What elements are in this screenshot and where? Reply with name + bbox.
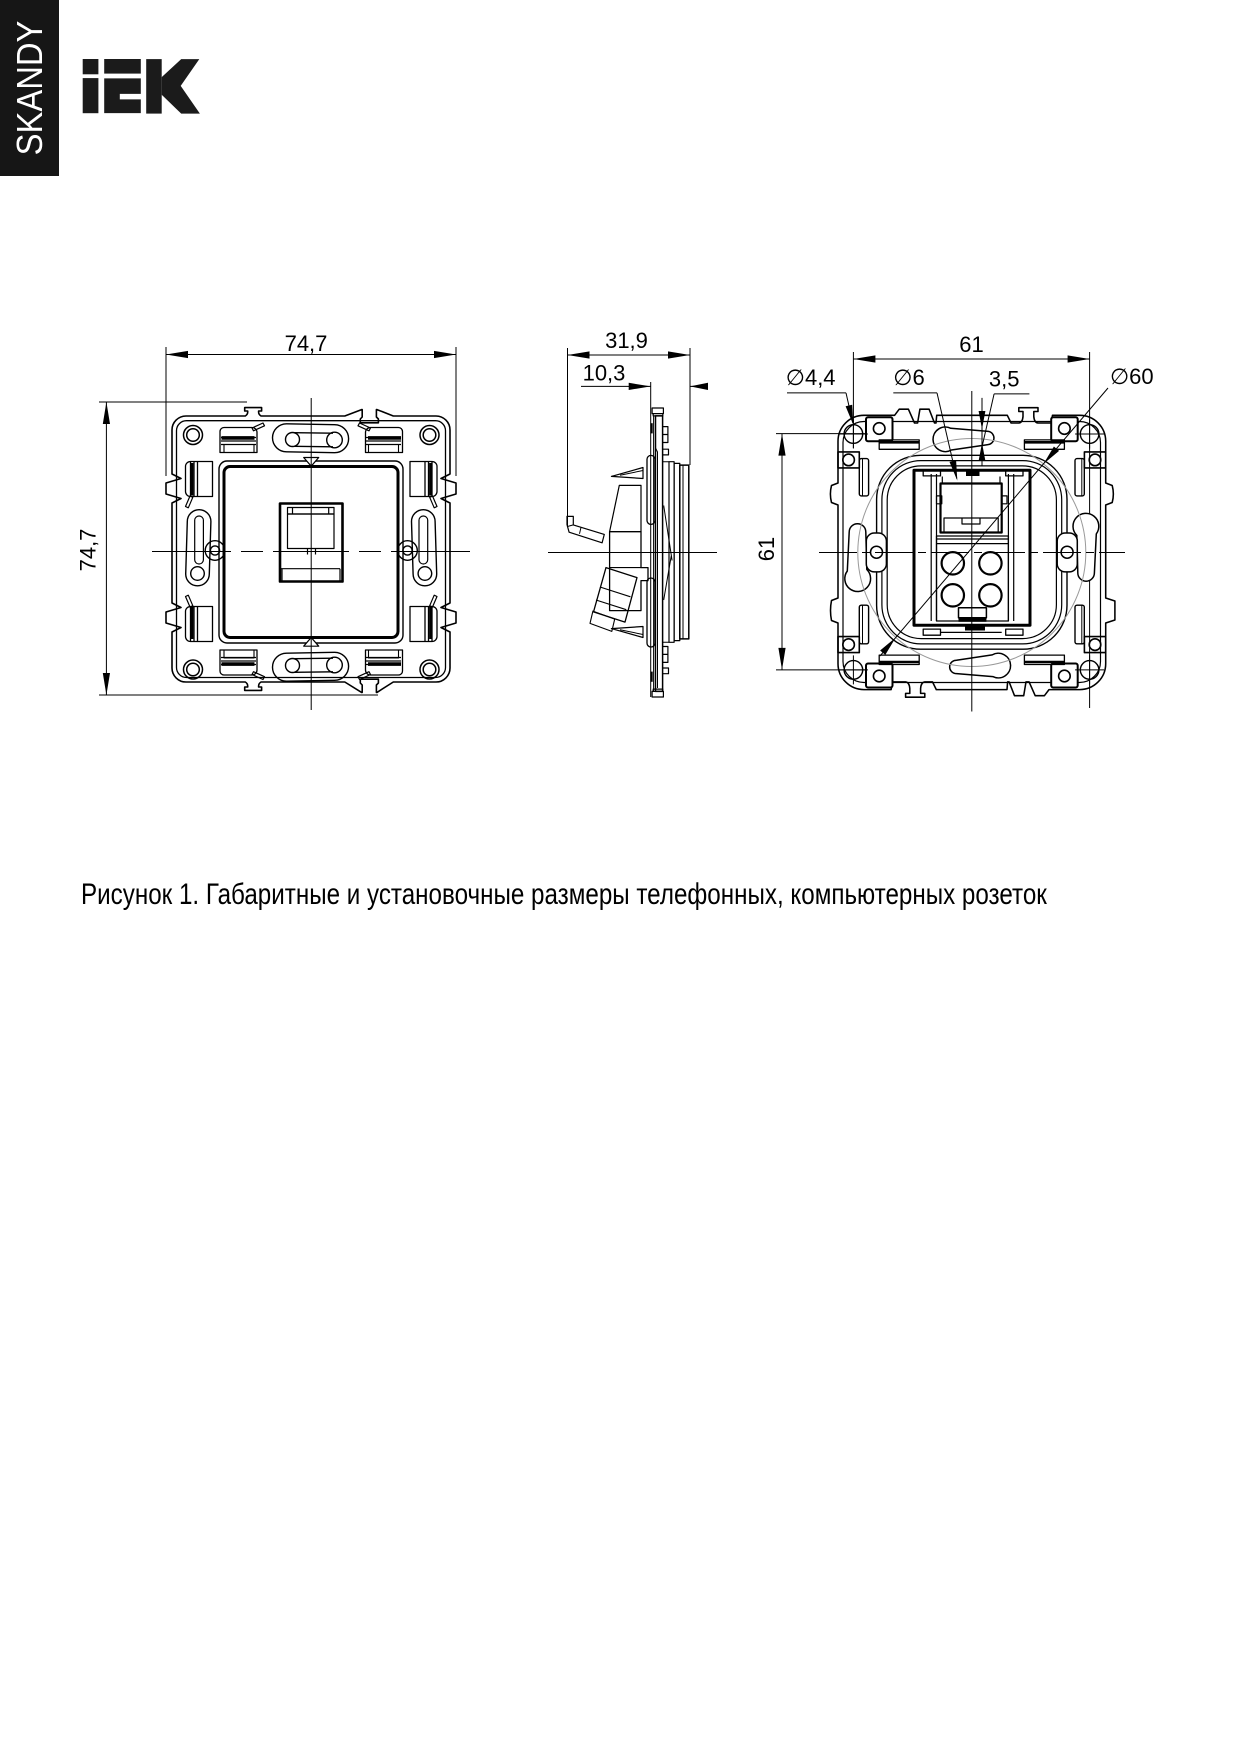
svg-text:74,7: 74,7: [76, 529, 101, 572]
svg-text:74,7: 74,7: [285, 331, 328, 356]
svg-text:61: 61: [959, 332, 983, 357]
svg-text:3,5: 3,5: [989, 367, 1020, 392]
svg-text:∅60: ∅60: [1110, 364, 1154, 389]
svg-text:∅6: ∅6: [893, 365, 924, 390]
svg-text:∅4,4: ∅4,4: [786, 365, 836, 390]
svg-text:61: 61: [754, 537, 779, 561]
svg-text:10,3: 10,3: [583, 361, 626, 386]
svg-text:31,9: 31,9: [605, 328, 648, 353]
